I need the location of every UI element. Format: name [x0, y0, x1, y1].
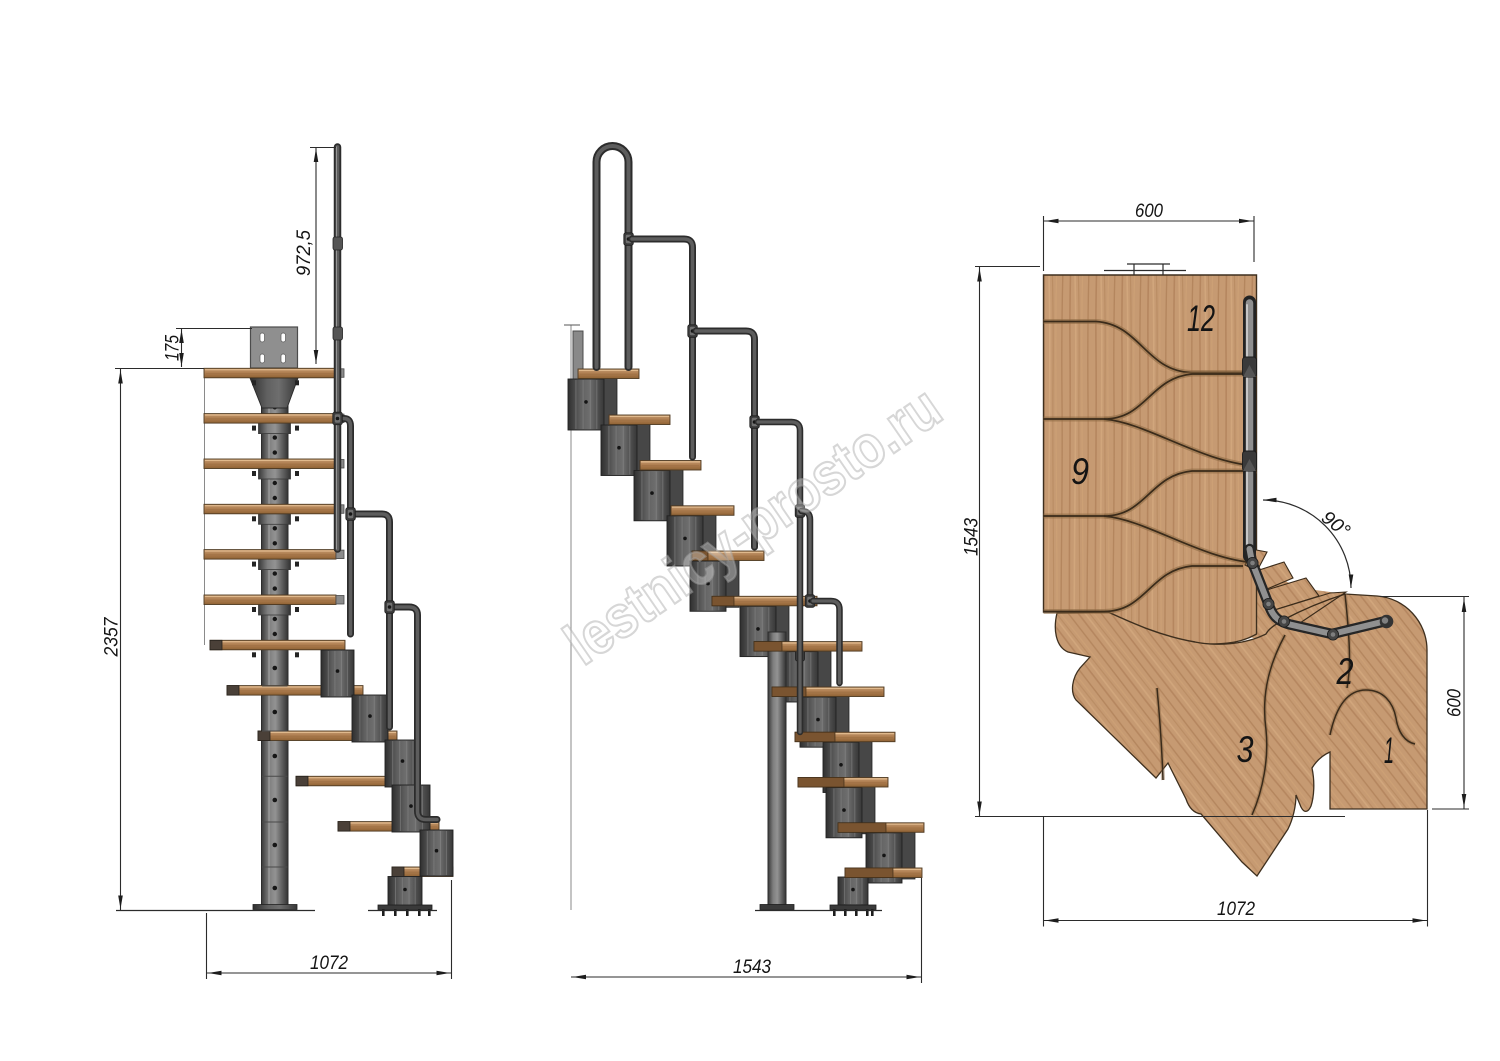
svg-text:175: 175 — [163, 335, 184, 361]
svg-text:972,5: 972,5 — [294, 230, 315, 276]
svg-text:1072: 1072 — [1217, 899, 1255, 920]
svg-text:1543: 1543 — [733, 957, 771, 978]
svg-text:600: 600 — [1445, 689, 1466, 717]
svg-text:1543: 1543 — [962, 518, 983, 556]
svg-text:1: 1 — [1384, 730, 1394, 771]
svg-text:12: 12 — [1187, 298, 1215, 339]
svg-text:1072: 1072 — [310, 953, 348, 974]
svg-text:2: 2 — [1336, 651, 1354, 692]
svg-text:2357: 2357 — [102, 616, 123, 657]
svg-text:600: 600 — [1135, 201, 1163, 222]
svg-text:3: 3 — [1237, 729, 1254, 770]
svg-text:9: 9 — [1071, 451, 1089, 492]
